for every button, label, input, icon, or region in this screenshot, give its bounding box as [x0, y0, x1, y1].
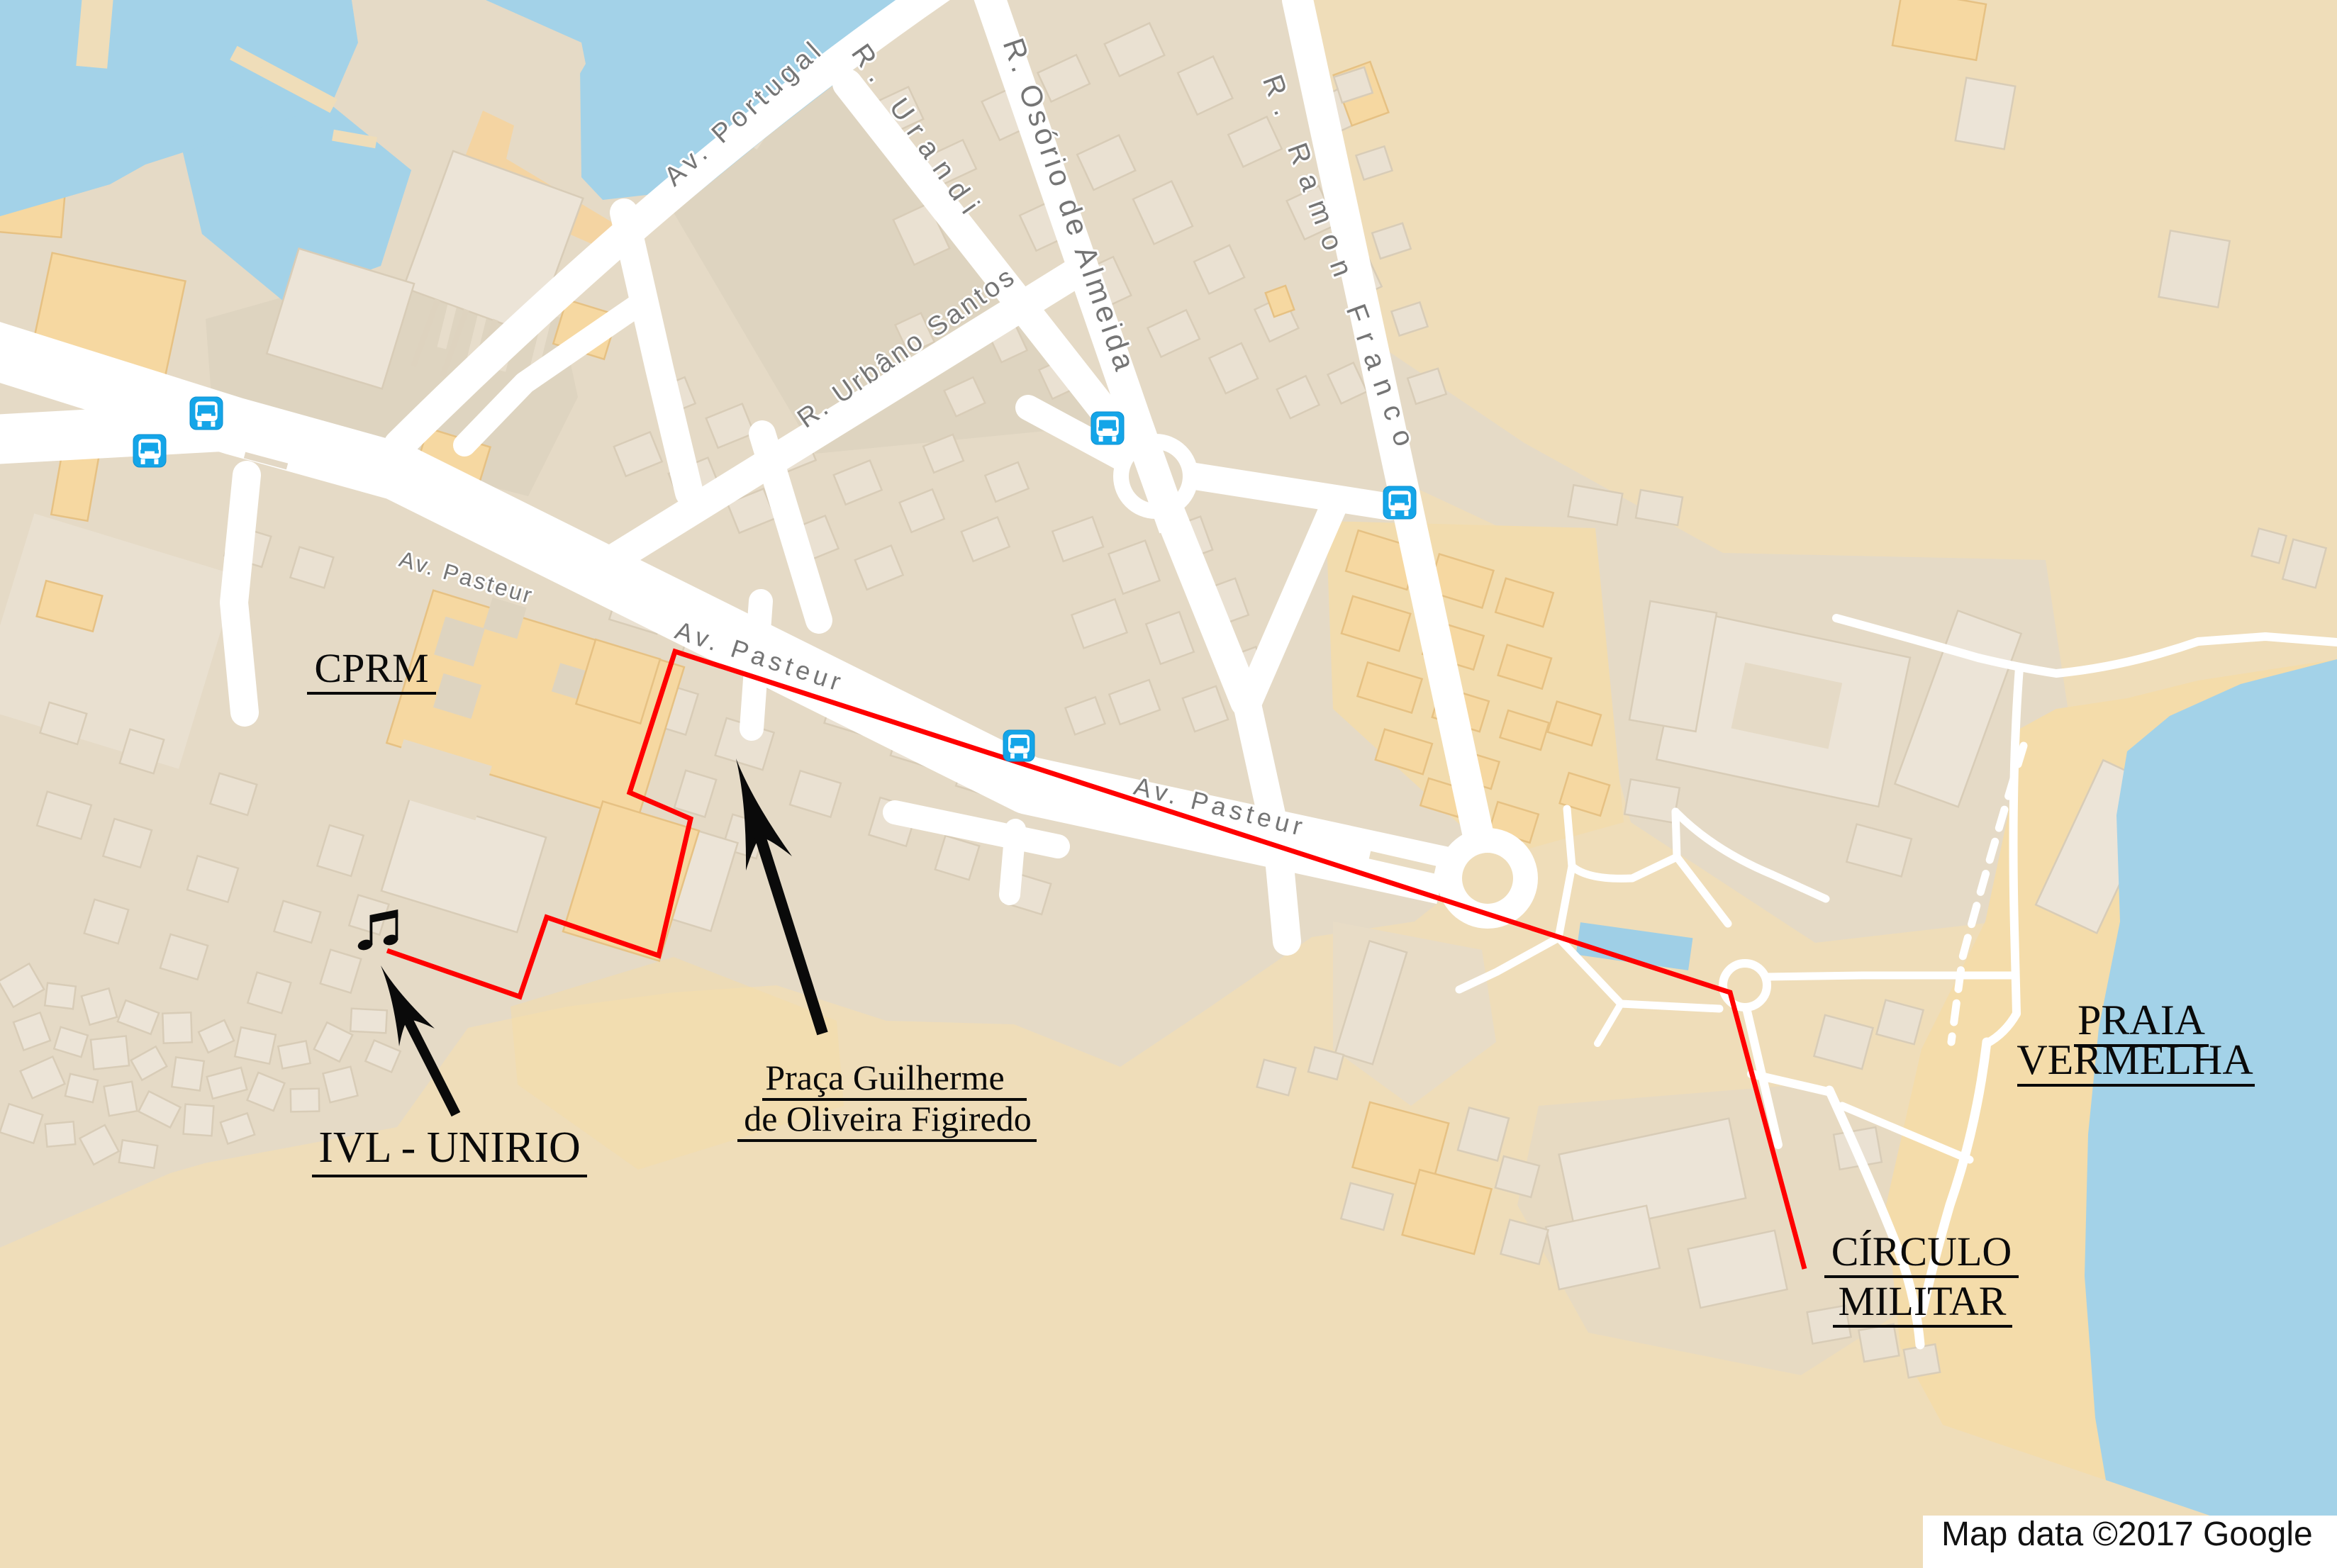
- svg-text:de Oliveira Figiredo: de Oliveira Figiredo: [744, 1099, 1031, 1138]
- svg-text:CPRM: CPRM: [314, 645, 428, 691]
- svg-text:CÍRCULO: CÍRCULO: [1831, 1228, 2012, 1275]
- svg-text:Map data ©2017 Google: Map data ©2017 Google: [1941, 1516, 2313, 1553]
- svg-text:MILITAR: MILITAR: [1839, 1278, 2007, 1324]
- svg-text:IVL - UNIRIO: IVL - UNIRIO: [318, 1124, 581, 1172]
- svg-text:Praça Guilherme: Praça Guilherme: [765, 1058, 1004, 1097]
- svg-text:VERMELHA: VERMELHA: [2017, 1036, 2253, 1083]
